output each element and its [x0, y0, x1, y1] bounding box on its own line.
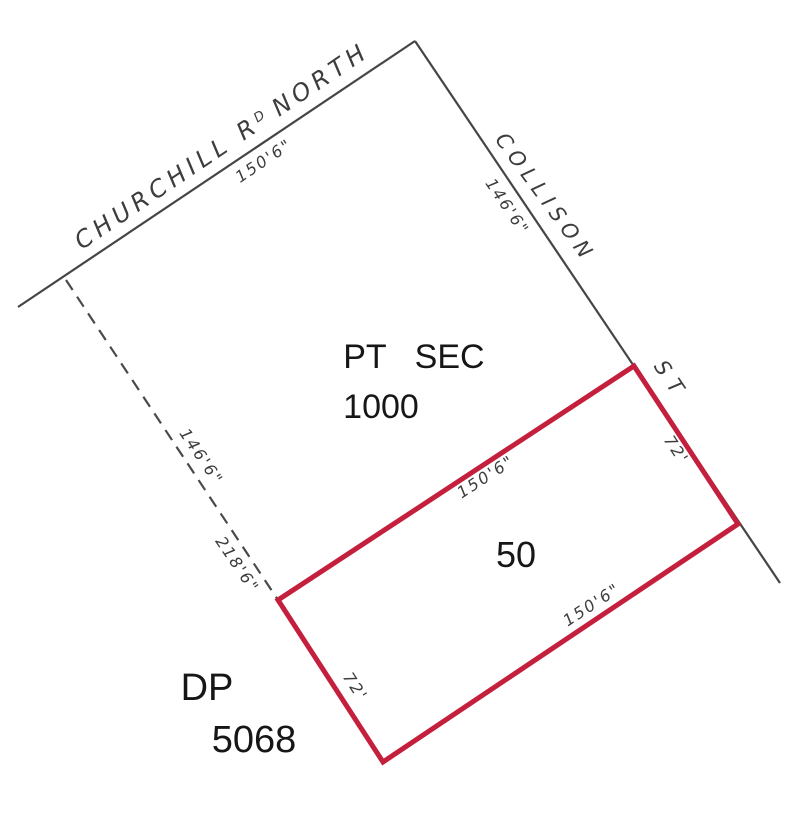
parent-parcel-type-word2: SEC — [415, 338, 485, 376]
parent-parcel-number: 1000 — [343, 390, 419, 424]
west-boundary-dashed-line — [66, 280, 278, 600]
deposited-plan-label: DP — [181, 669, 234, 707]
lot-number: 50 — [496, 537, 536, 573]
parent-parcel-type-word1: PT — [343, 338, 386, 376]
deposited-plan-number: 5068 — [212, 721, 297, 759]
survey-plan-canvas: CHURCHILL RDNORTH 150'6" COLLISON ST 146… — [0, 0, 800, 815]
